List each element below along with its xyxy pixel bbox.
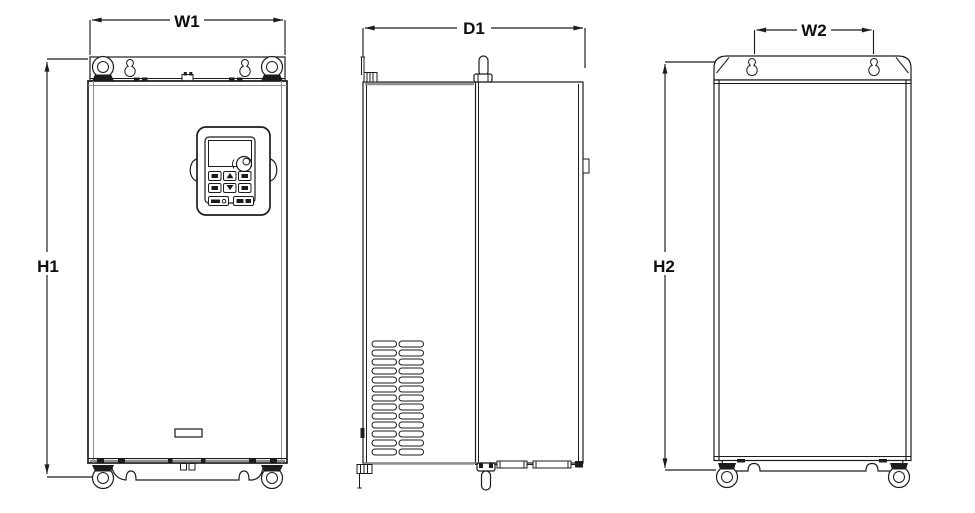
w1-dimension-label: W1 [174, 12, 200, 31]
side-bottom-right-foot [575, 461, 583, 468]
side-bottom-eyebolt [477, 463, 495, 490]
side-bottom-trays [497, 461, 583, 468]
rear-body-panel [714, 80, 911, 461]
side-view: D1 [357, 17, 589, 490]
side-right-protrusion [583, 159, 589, 173]
side-bottom-left-bracket [357, 465, 372, 489]
w2-dimension-label: W2 [801, 21, 827, 40]
rear-bottom-right-eyebolt [889, 463, 910, 488]
d1-dimension-label: D1 [463, 19, 485, 38]
rear-h2-dimension: H2 [648, 62, 716, 470]
front-bottom-left-eyebolt [92, 465, 114, 489]
front-bottom-plate-edge [112, 468, 263, 480]
front-top-right-keyhole-slot [240, 60, 250, 77]
h2-dimension-label: H2 [653, 257, 675, 276]
front-top-mounting-bracket [90, 57, 285, 82]
front-h1-dimension: H1 [32, 59, 92, 477]
side-d1-dimension: D1 [363, 17, 585, 68]
dimension-drawing-page: W1 H1 [0, 0, 975, 513]
rear-w2-dimension: W2 [755, 19, 874, 54]
front-top-left-eyebolt [92, 57, 114, 82]
front-top-left-keyhole-slot [125, 60, 135, 77]
rear-view: W2 H2 [648, 19, 911, 488]
rear-bottom-plate-edge [722, 461, 903, 472]
rear-right-keyhole-slot [869, 59, 879, 76]
front-top-right-eyebolt [261, 57, 283, 82]
dimension-drawing-canvas: W1 H1 [0, 0, 975, 513]
front-bottom-center-bolt [181, 464, 196, 471]
rear-top-mounting-bracket [714, 56, 911, 80]
front-bottom-right-eyebolt [261, 465, 283, 489]
front-keypad-panel [190, 127, 277, 215]
side-left-edge-clip [361, 428, 365, 438]
front-bottom-slot [175, 429, 202, 437]
rear-left-keyhole-slot [747, 59, 757, 76]
front-w1-dimension: W1 [90, 9, 285, 55]
rear-bottom-mounting-bracket [717, 459, 910, 488]
h1-dimension-label: H1 [37, 257, 59, 276]
front-view: W1 H1 [32, 9, 287, 489]
side-top-flange [361, 57, 378, 82]
side-top-eyebolt [474, 56, 492, 82]
rear-bottom-left-eyebolt [717, 463, 738, 488]
